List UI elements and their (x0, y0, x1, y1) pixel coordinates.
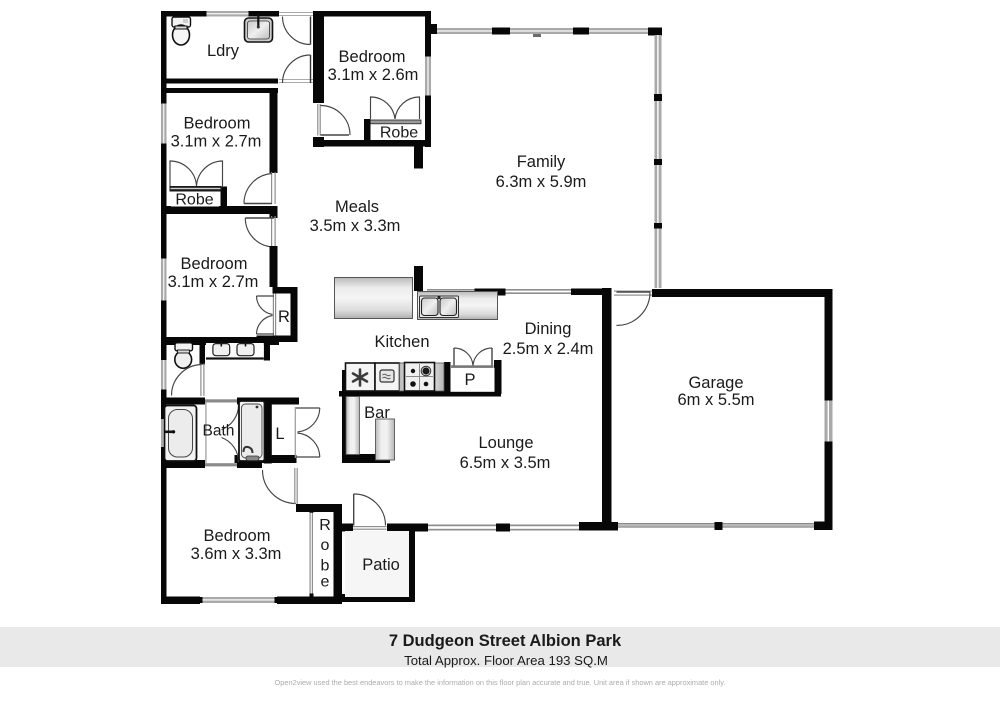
svg-text:Open2view used the best endeav: Open2view used the best endeavors to mak… (275, 678, 726, 687)
svg-text:Total Approx. Floor Area 193 S: Total Approx. Floor Area 193 SQ.M (404, 653, 608, 668)
svg-text:7 Dudgeon Street Albion Park: 7 Dudgeon Street Albion Park (389, 632, 622, 650)
svg-text:Bar: Bar (364, 404, 390, 422)
svg-text:Kitchen: Kitchen (374, 333, 429, 351)
svg-text:o: o (321, 537, 330, 554)
svg-text:6.3m x 5.9m: 6.3m x 5.9m (496, 173, 587, 191)
svg-text:Family: Family (517, 153, 566, 171)
svg-text:Bedroom: Bedroom (184, 115, 251, 133)
svg-text:e: e (321, 574, 330, 591)
svg-text:Bedroom: Bedroom (339, 48, 406, 66)
svg-text:Lounge: Lounge (478, 434, 533, 452)
svg-text:3.1m x 2.6m: 3.1m x 2.6m (328, 66, 419, 84)
svg-text:6m x 5.5m: 6m x 5.5m (677, 391, 754, 409)
svg-text:Garage: Garage (688, 374, 743, 392)
svg-text:R: R (319, 517, 331, 534)
svg-text:Patio: Patio (362, 556, 400, 574)
svg-text:Dining: Dining (525, 320, 572, 338)
svg-text:Ldry: Ldry (207, 42, 240, 60)
svg-text:L: L (275, 425, 284, 443)
svg-text:2.5m x 2.4m: 2.5m x 2.4m (503, 340, 594, 358)
svg-text:Bedroom: Bedroom (181, 255, 248, 273)
svg-text:6.5m x 3.5m: 6.5m x 3.5m (460, 454, 551, 472)
svg-text:3.5m x 3.3m: 3.5m x 3.3m (310, 217, 401, 235)
svg-text:3.1m x 2.7m: 3.1m x 2.7m (171, 133, 262, 151)
svg-text:Meals: Meals (335, 198, 379, 216)
svg-text:Bath: Bath (203, 423, 235, 440)
svg-text:3.1m x 2.7m: 3.1m x 2.7m (168, 273, 259, 291)
svg-text:Robe: Robe (380, 125, 418, 142)
svg-text:3.6m x 3.3m: 3.6m x 3.3m (191, 545, 282, 563)
svg-text:P: P (464, 371, 475, 389)
svg-text:Bedroom: Bedroom (204, 527, 271, 545)
svg-text:R: R (278, 308, 290, 326)
svg-text:Robe: Robe (175, 192, 213, 209)
svg-text:b: b (321, 558, 330, 575)
